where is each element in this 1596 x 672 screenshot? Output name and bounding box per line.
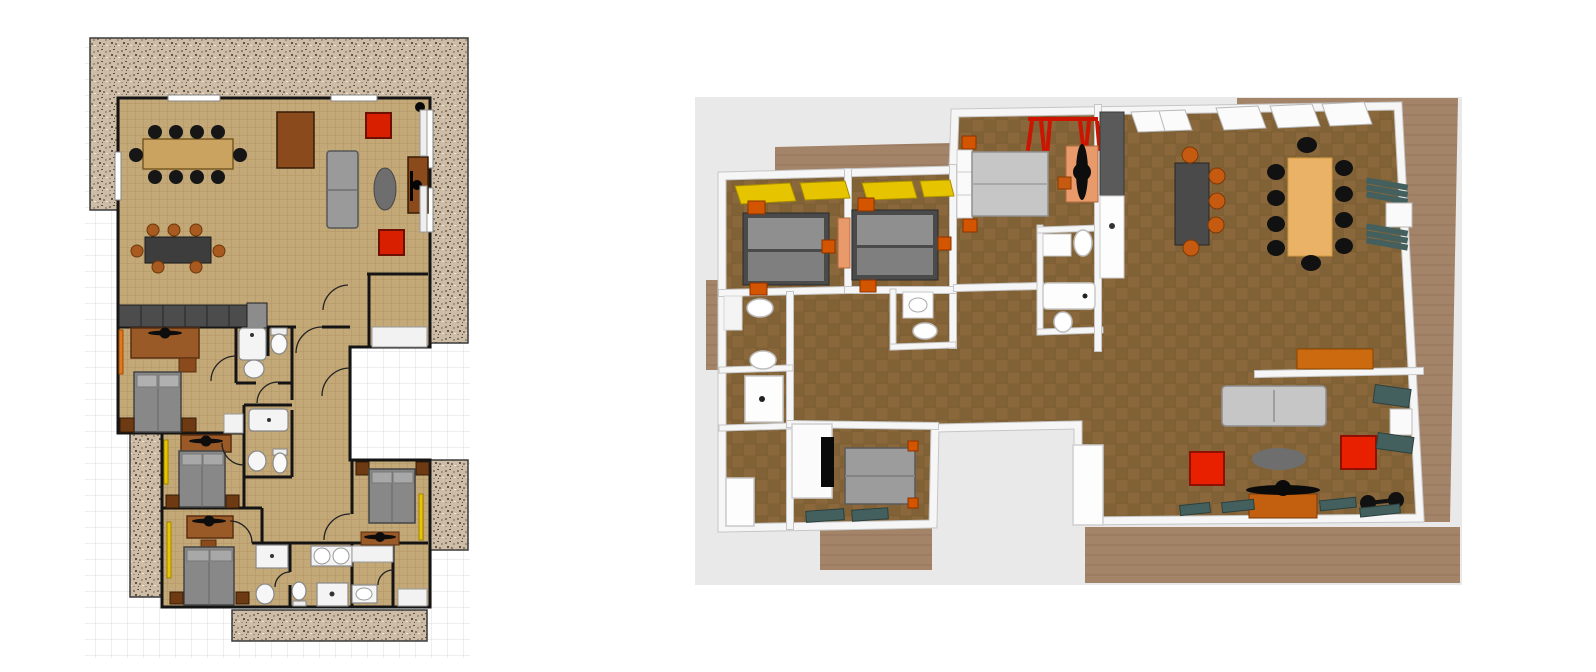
chair-black [1335, 238, 1353, 254]
kitchen-end-unit [247, 303, 267, 328]
kitchen-cabinets [1100, 196, 1124, 278]
chair-black [1267, 164, 1285, 180]
wall-3d [1040, 228, 1100, 230]
half-wall-divider [1258, 371, 1420, 374]
window-left [115, 152, 121, 200]
bed-pillow [372, 472, 392, 483]
dining-chair [148, 170, 162, 184]
wall-3d [722, 426, 790, 428]
tv-3d-hub [1275, 480, 1291, 496]
nightstand [860, 280, 876, 292]
nightstand [908, 441, 918, 451]
dining-chair [190, 170, 204, 184]
toilet-bowl [273, 453, 287, 473]
chair-black [1335, 160, 1353, 176]
chair-black [1301, 255, 1321, 271]
shower [726, 478, 754, 526]
chair-black [1267, 216, 1285, 232]
wall-shelf-yellow [800, 181, 850, 200]
nightstand [938, 237, 951, 250]
white-cabinet [724, 296, 742, 330]
toilet [1054, 312, 1072, 332]
chair-black [1267, 240, 1285, 256]
wall-3d-layer [722, 426, 790, 428]
deck-bottom-small [820, 528, 932, 570]
ceiling-fan-hub [1073, 163, 1091, 181]
floor-shelf-teal [806, 509, 845, 523]
kitchen-counter-3d [1100, 112, 1124, 202]
nightstand [858, 198, 874, 211]
wall-3d [1040, 330, 1100, 332]
small-chair [190, 261, 202, 273]
wall-3d-layer [1040, 330, 1100, 332]
coat-rack-bar [1028, 117, 1098, 121]
small-chair [147, 224, 159, 236]
dining-chair [169, 125, 183, 139]
floor-plan-screenshot [0, 0, 1596, 672]
nightstand [356, 462, 369, 475]
small-chair [168, 224, 180, 236]
sink-drain [270, 554, 274, 558]
dining-chair [129, 148, 143, 162]
bathtub-drain [1083, 294, 1088, 299]
nightstand [962, 136, 976, 149]
nightstand [236, 592, 249, 604]
closet [352, 546, 393, 562]
shower-drain [330, 592, 335, 597]
nightstand [182, 418, 196, 432]
closet [224, 414, 243, 433]
nightstand [166, 495, 179, 508]
chair-orange [1208, 217, 1224, 233]
floor-plan-2d-panel [85, 36, 470, 658]
window-3d [1216, 106, 1266, 130]
bed-mattress [748, 218, 824, 249]
wall-3d-layer [893, 345, 953, 347]
tv-stand-3d [1249, 494, 1317, 518]
ceiling-fan-hub [201, 436, 212, 447]
ceiling-fan-hub [204, 516, 215, 527]
dining-chair [148, 125, 162, 139]
armchair-red [366, 113, 391, 138]
closet [398, 589, 427, 606]
rug-oval [1252, 448, 1306, 470]
chair-orange [1209, 193, 1225, 209]
washer-drum [314, 548, 330, 564]
dining-table-3d [1288, 158, 1332, 256]
terrace-right-patch [430, 460, 468, 550]
chair-orange [1209, 168, 1225, 184]
desk-chair [1058, 177, 1071, 189]
window-top-2 [331, 95, 377, 101]
radiator [119, 330, 123, 374]
half-wall-divider-layer [1258, 371, 1420, 374]
small-chair [190, 224, 202, 236]
toilet-bowl [292, 582, 306, 600]
floor-plan-3d-panel [695, 97, 1462, 585]
small-chair [131, 245, 143, 257]
nightstand [908, 498, 918, 508]
small-chair [213, 245, 225, 257]
ceiling-fan-hub [160, 328, 171, 339]
bed-pillow [182, 454, 202, 465]
chair-orange [1183, 240, 1199, 256]
tv-3d [821, 437, 834, 487]
oval-table [374, 168, 396, 210]
nightstand [226, 495, 239, 508]
headboard-shelf [957, 150, 972, 218]
chair-black [1267, 190, 1285, 206]
wall-3d [722, 290, 848, 293]
bathtub-drain [250, 333, 254, 337]
desk-salmon [838, 218, 850, 268]
kitchen-counter [119, 305, 247, 327]
shower [1043, 234, 1071, 256]
terrace-left-strip [130, 433, 163, 597]
washbasin [256, 584, 274, 604]
dining-chair [211, 170, 225, 184]
chair-black [1335, 212, 1353, 228]
wardrobe-yellow [419, 494, 423, 540]
wall-shelf-yellow [920, 180, 954, 197]
entry-closet [372, 327, 427, 347]
wall-3d-layer [1040, 228, 1100, 230]
armchair-red [379, 230, 404, 255]
toilet [913, 323, 937, 339]
washbasin [356, 588, 372, 600]
nightstand [416, 462, 429, 475]
closet [1073, 445, 1103, 525]
wall-3d-layer [722, 290, 848, 293]
dining-table [143, 139, 233, 169]
washbasin [244, 360, 264, 378]
dining-chair [211, 125, 225, 139]
chair-orange [1182, 147, 1198, 163]
chair-black [1297, 137, 1317, 153]
wall-shelf [420, 110, 427, 156]
dining-chair [233, 148, 247, 162]
bed-mattress [857, 215, 933, 245]
wall-3d [957, 286, 1040, 288]
small-table [145, 237, 211, 263]
washing-machine-drum [909, 298, 927, 312]
nightstand [170, 592, 183, 604]
armchair-red [1190, 452, 1224, 485]
ceiling-fan-hub [375, 532, 385, 542]
sideboard-cabinet [277, 112, 314, 168]
bathtub-drain [267, 418, 271, 422]
wall-3d [893, 345, 953, 347]
nightstand [748, 201, 765, 214]
bathtub [239, 328, 266, 360]
sideboard-3d [1297, 349, 1373, 369]
bed-pillow [203, 454, 223, 465]
small-chair [152, 261, 164, 273]
bed-pillow [187, 550, 209, 561]
dining-chair [169, 170, 183, 184]
bed-pillow [210, 550, 232, 561]
nightstand [120, 418, 134, 432]
wardrobe-yellow [167, 522, 171, 578]
wall-3d-layer [957, 286, 1040, 288]
washbasin-drain [759, 396, 765, 402]
toilet [750, 351, 776, 369]
window-3d [1322, 102, 1372, 126]
desk-chair [179, 358, 196, 372]
window-right-3d [1386, 203, 1412, 227]
wardrobe-yellow [164, 440, 168, 484]
toilet-tank [293, 601, 306, 606]
bed-pillow [393, 472, 413, 483]
washbasin [248, 451, 266, 471]
deck-left-sliver [706, 280, 718, 370]
toilet-bowl [271, 334, 287, 354]
terrace-bottom-strip [232, 610, 427, 641]
dryer-drum [333, 548, 349, 564]
window-right-3d [1390, 409, 1412, 435]
wall-shelf-yellow [862, 181, 917, 200]
armchair-red [1341, 436, 1376, 469]
kitchen-sink-dot [1109, 223, 1115, 229]
bed-pillow [159, 375, 179, 387]
bed-mattress [748, 252, 824, 281]
table-dark [1175, 163, 1209, 245]
nightstand [822, 240, 835, 253]
toilet [747, 299, 773, 317]
chair-black [1335, 186, 1353, 202]
nightstand [963, 219, 977, 232]
floor-plan-canvas [0, 0, 1596, 672]
nightstand [750, 283, 767, 295]
window-top-1 [168, 95, 220, 101]
floor-shelf-teal [852, 508, 889, 521]
toilet [1074, 230, 1092, 256]
bed-pillow [137, 375, 157, 387]
deck-bottom-right [1085, 527, 1460, 583]
dining-chair [190, 125, 204, 139]
bed-mattress [857, 248, 933, 275]
window-3d [1270, 104, 1320, 128]
wall-shelf [420, 186, 427, 232]
